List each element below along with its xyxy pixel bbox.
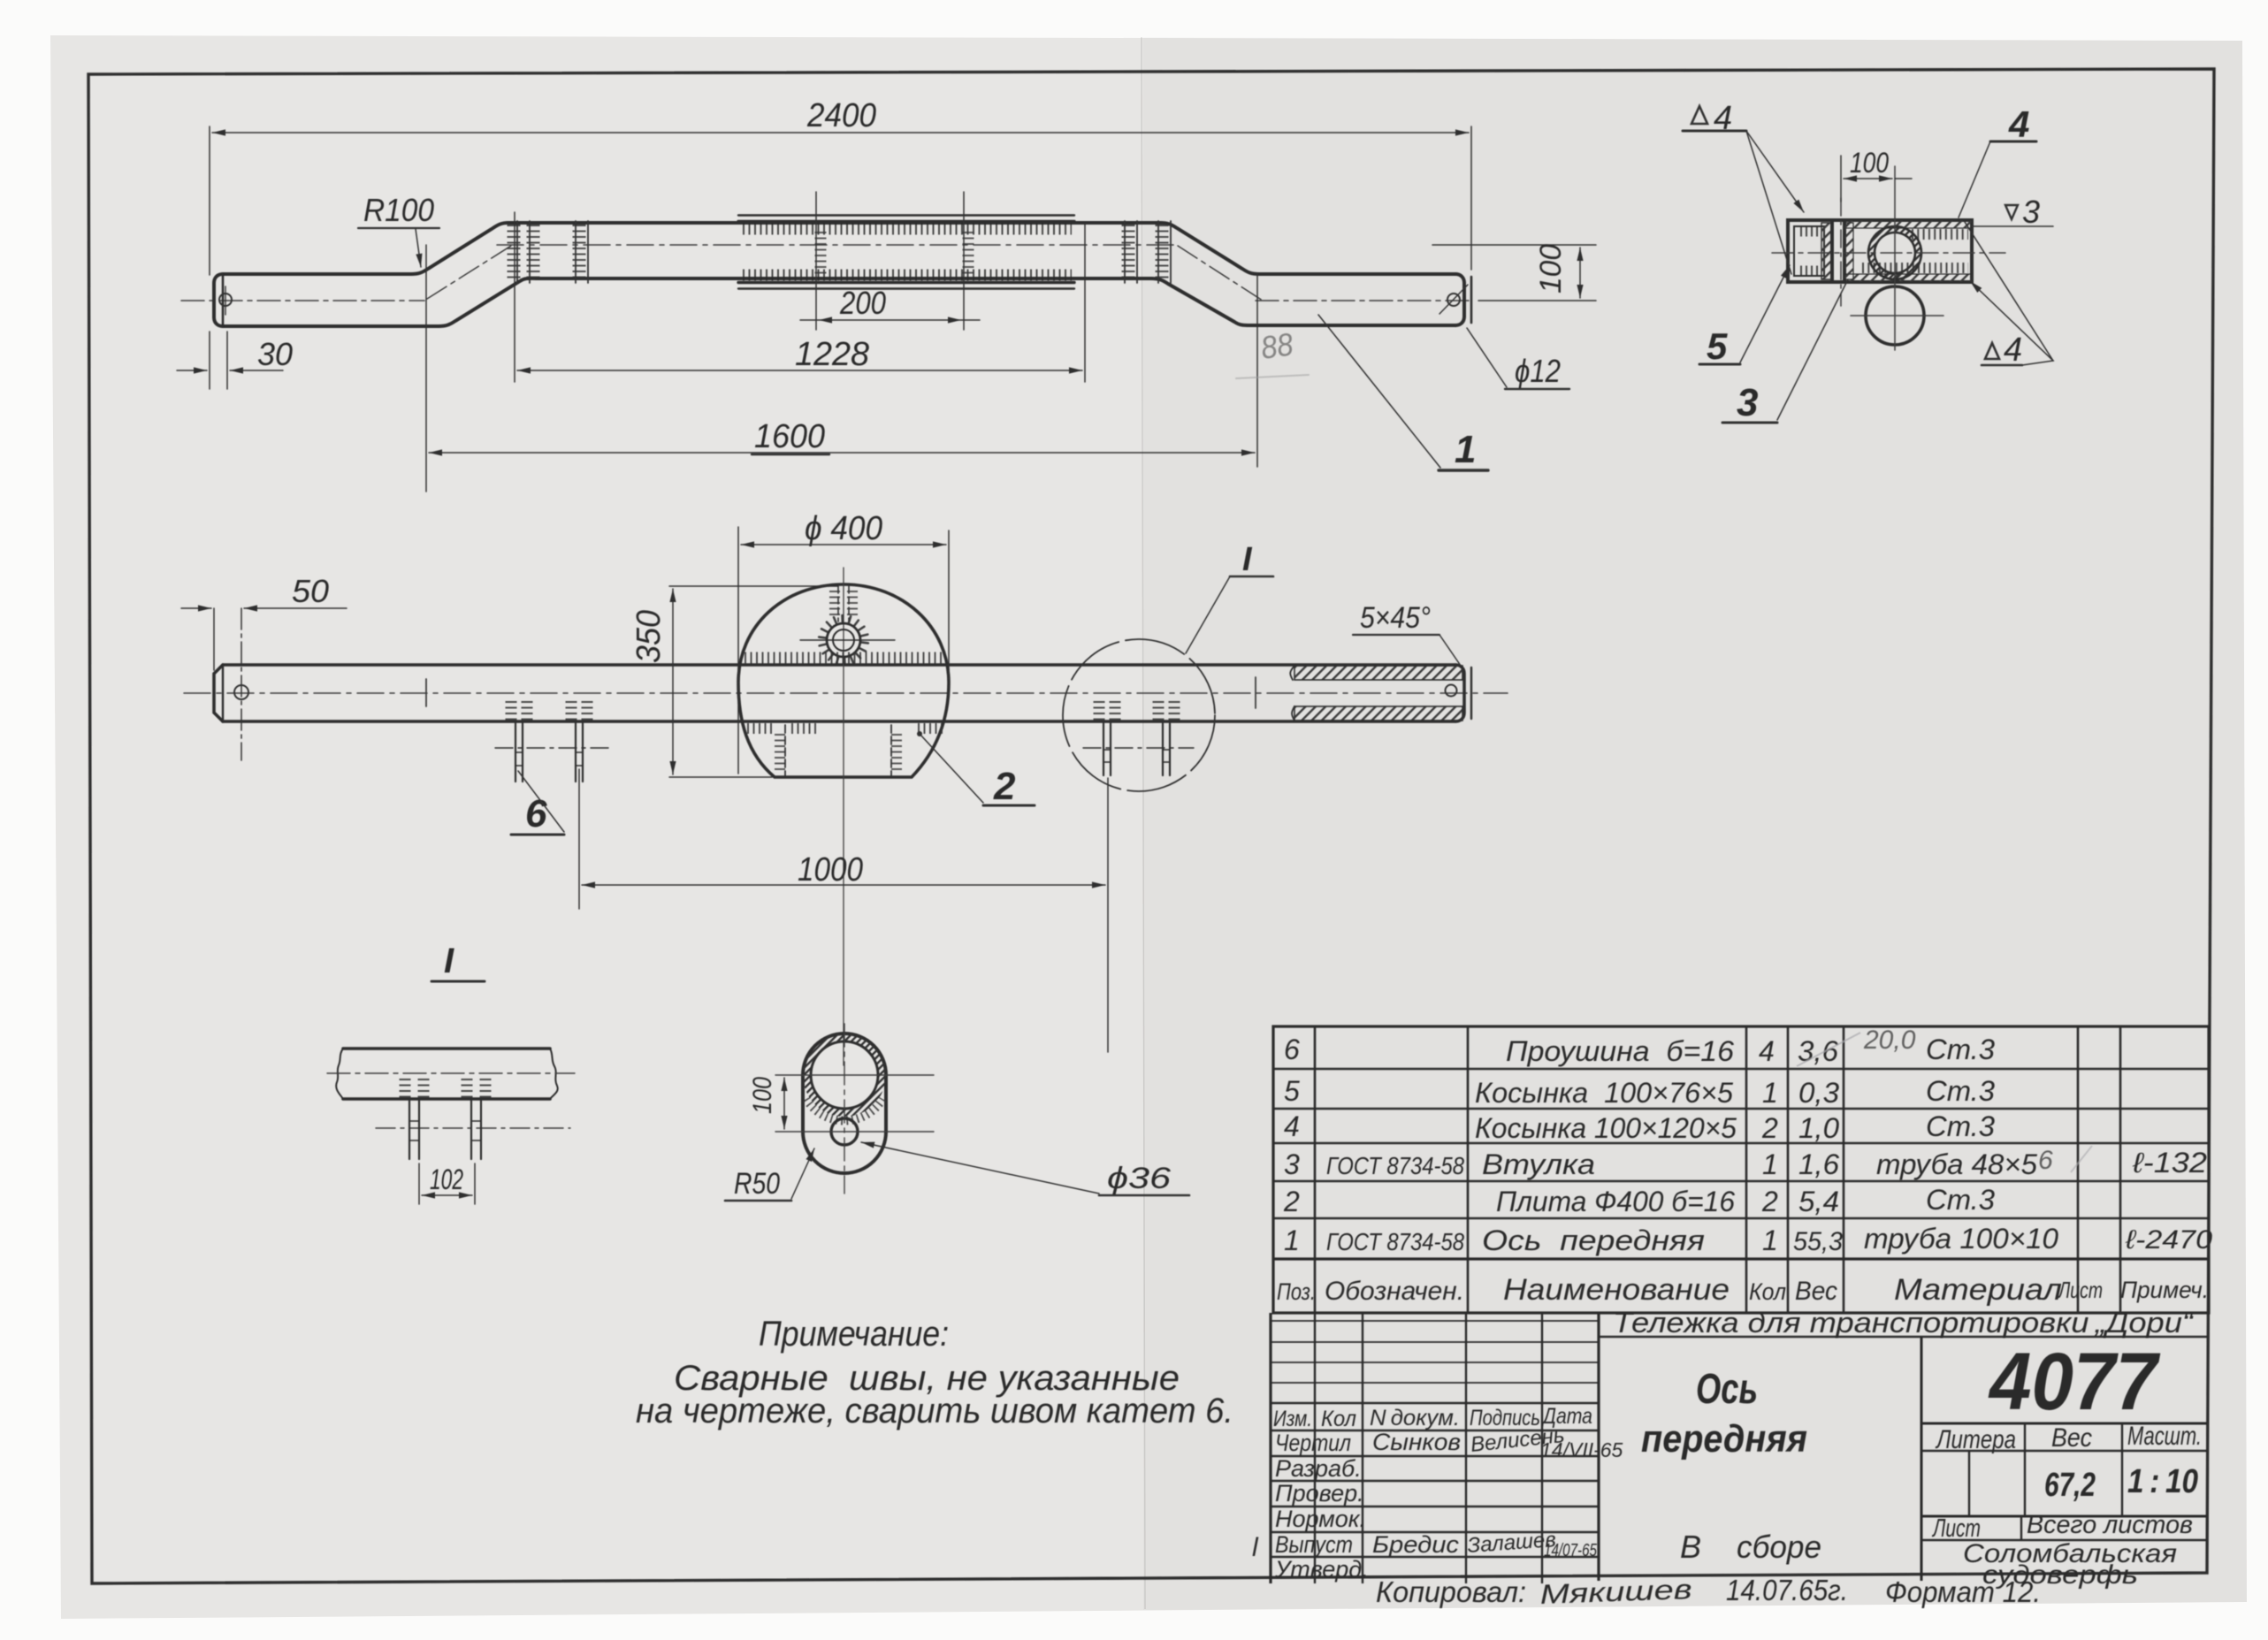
svg-text:Примеч.: Примеч.	[2120, 1277, 2209, 1303]
svg-text:труба 100×10: труба 100×10	[1864, 1223, 2058, 1255]
svg-text:2400: 2400	[806, 97, 876, 134]
svg-text:1600: 1600	[754, 418, 825, 455]
svg-text:Литера: Литера	[1935, 1425, 2016, 1454]
svg-text:Ст.3: Ст.3	[1926, 1034, 1995, 1065]
svg-text:20,0: 20,0	[1863, 1026, 1916, 1055]
svg-text:Плита Ф400 б=16: Плита Ф400 б=16	[1496, 1186, 1735, 1217]
svg-text:Всего листов: Всего листов	[2027, 1511, 2193, 1539]
svg-text:Мякишев: Мякишев	[1539, 1574, 1692, 1610]
svg-text:50: 50	[292, 573, 329, 609]
svg-text:Кол: Кол	[1749, 1278, 1786, 1305]
svg-text:Поз.: Поз.	[1277, 1278, 1316, 1305]
svg-text:передняя: передняя	[1641, 1417, 1807, 1461]
svg-text:102: 102	[430, 1163, 463, 1195]
svg-text:14.07.65г.: 14.07.65г.	[1726, 1574, 1848, 1606]
svg-text:3: 3	[2022, 194, 2040, 230]
svg-text:R100: R100	[363, 192, 434, 228]
svg-text:Нормок.: Нормок.	[1275, 1506, 1366, 1532]
svg-text:I: I	[1242, 541, 1253, 578]
svg-text:5: 5	[1284, 1075, 1300, 1107]
svg-text:Обозначен.: Обозначен.	[1325, 1277, 1464, 1306]
svg-text:Вес: Вес	[1795, 1277, 1837, 1306]
svg-text:ϕ36: ϕ36	[1107, 1162, 1171, 1195]
svg-text:Утверд.: Утверд.	[1274, 1556, 1369, 1583]
svg-text:5: 5	[1707, 325, 1728, 367]
svg-text:труба 48×5: труба 48×5	[1876, 1148, 2037, 1180]
svg-text:0,3: 0,3	[1798, 1077, 1839, 1109]
svg-text:4: 4	[1284, 1110, 1300, 1142]
svg-text:сборе: сборе	[1737, 1529, 1821, 1565]
svg-text:30: 30	[257, 336, 293, 372]
svg-text:55,3: 55,3	[1793, 1227, 1843, 1256]
svg-text:Чертил: Чертил	[1275, 1430, 1351, 1456]
svg-text:Ст.3: Ст.3	[1926, 1184, 1995, 1216]
svg-text:Выпуст: Выпуст	[1275, 1531, 1353, 1558]
svg-text:14/07-65: 14/07-65	[1544, 1541, 1598, 1560]
svg-text:350: 350	[630, 610, 668, 663]
svg-text:2: 2	[993, 765, 1016, 808]
svg-text:R50: R50	[734, 1167, 780, 1201]
svg-text:Сынков: Сынков	[1372, 1429, 1461, 1455]
svg-text:2: 2	[1283, 1186, 1300, 1217]
svg-text:1: 1	[1762, 1224, 1778, 1256]
svg-text:Вес: Вес	[2051, 1423, 2092, 1453]
svg-text:Бредис: Бредис	[1372, 1531, 1460, 1558]
svg-text:4077: 4077	[1988, 1337, 2160, 1427]
svg-text:3: 3	[1737, 381, 1758, 424]
svg-text:Разраб.: Разраб.	[1275, 1455, 1362, 1482]
svg-text:N докум.: N докум.	[1370, 1406, 1460, 1430]
svg-text:1,6: 1,6	[1798, 1148, 1839, 1180]
svg-text:6: 6	[1284, 1034, 1300, 1065]
svg-text:6: 6	[525, 792, 547, 835]
svg-text:Лист: Лист	[2058, 1277, 2103, 1303]
svg-text:4: 4	[2004, 332, 2022, 369]
svg-text:Косынка 100×76×5: Косынка 100×76×5	[1475, 1077, 1733, 1109]
svg-text:В: В	[1680, 1529, 1701, 1565]
svg-text:Тележка для транспортировки „Д: Тележка для транспортировки „Дори“	[1613, 1307, 2195, 1339]
svg-text:ϕ 400: ϕ 400	[805, 510, 882, 547]
svg-text:5,4: 5,4	[1798, 1186, 1839, 1217]
svg-text:1 : 10: 1 : 10	[2127, 1463, 2198, 1500]
svg-text:200: 200	[839, 285, 886, 321]
svg-text:88: 88	[1258, 325, 1294, 366]
svg-text:Масшт.: Масшт.	[2127, 1422, 2202, 1451]
svg-text:Косынка 100×120×5: Косынка 100×120×5	[1475, 1112, 1737, 1144]
svg-text:Ось: Ось	[1696, 1366, 1758, 1413]
svg-text:1: 1	[1455, 428, 1476, 471]
svg-text:ℓ-2470: ℓ-2470	[2125, 1225, 2212, 1255]
svg-text:Формат 12.: Формат 12.	[1885, 1575, 2041, 1608]
svg-text:1000: 1000	[798, 851, 863, 889]
svg-text:100: 100	[1534, 244, 1568, 294]
svg-text:1228: 1228	[795, 336, 869, 373]
svg-text:Ось передняя: Ось передняя	[1482, 1224, 1705, 1256]
svg-text:100: 100	[748, 1077, 777, 1114]
svg-text:1: 1	[1762, 1077, 1778, 1109]
svg-text:Ст.3: Ст.3	[1926, 1110, 1995, 1142]
svg-text:Ст.3: Ст.3	[1926, 1075, 1995, 1107]
svg-text:1,0: 1,0	[1798, 1112, 1839, 1144]
svg-text:ГОСТ 8734-58: ГОСТ 8734-58	[1326, 1152, 1464, 1179]
svg-text:6: 6	[2038, 1146, 2053, 1175]
svg-text:14/VII-65: 14/VII-65	[1540, 1438, 1623, 1461]
svg-text:ГОСТ 8734-58: ГОСТ 8734-58	[1326, 1228, 1464, 1255]
svg-text:Втулка: Втулка	[1482, 1148, 1595, 1180]
svg-text:4: 4	[2008, 103, 2029, 145]
svg-text:Примечание:: Примечание:	[759, 1315, 949, 1354]
svg-text:Материал: Материал	[1894, 1273, 2062, 1307]
svg-text:67,2: 67,2	[2044, 1467, 2096, 1504]
svg-text:5×45°: 5×45°	[1360, 601, 1431, 635]
svg-text:I: I	[444, 942, 454, 980]
svg-text:Наименование: Наименование	[1503, 1273, 1730, 1307]
svg-text:1: 1	[1284, 1224, 1300, 1256]
svg-text:Провер.: Провер.	[1275, 1480, 1364, 1507]
svg-text:ℓ-132: ℓ-132	[2132, 1147, 2207, 1179]
svg-text:Копировал:: Копировал:	[1376, 1575, 1526, 1608]
svg-text:Кол: Кол	[1321, 1407, 1356, 1431]
svg-text:Изм.: Изм.	[1273, 1407, 1312, 1431]
svg-text:1: 1	[1762, 1148, 1778, 1180]
svg-text:100: 100	[1850, 147, 1889, 179]
svg-text:3: 3	[1284, 1148, 1300, 1180]
svg-text:2: 2	[1761, 1112, 1778, 1144]
svg-text:2: 2	[1761, 1186, 1778, 1217]
svg-text:4: 4	[1759, 1035, 1775, 1067]
svg-text:ϕ12: ϕ12	[1515, 353, 1561, 389]
svg-text:на чертеже, сварить швом катет: на чертеже, сварить швом катет 6.	[636, 1392, 1233, 1430]
svg-text:Проушина б=16: Проушина б=16	[1506, 1035, 1734, 1067]
